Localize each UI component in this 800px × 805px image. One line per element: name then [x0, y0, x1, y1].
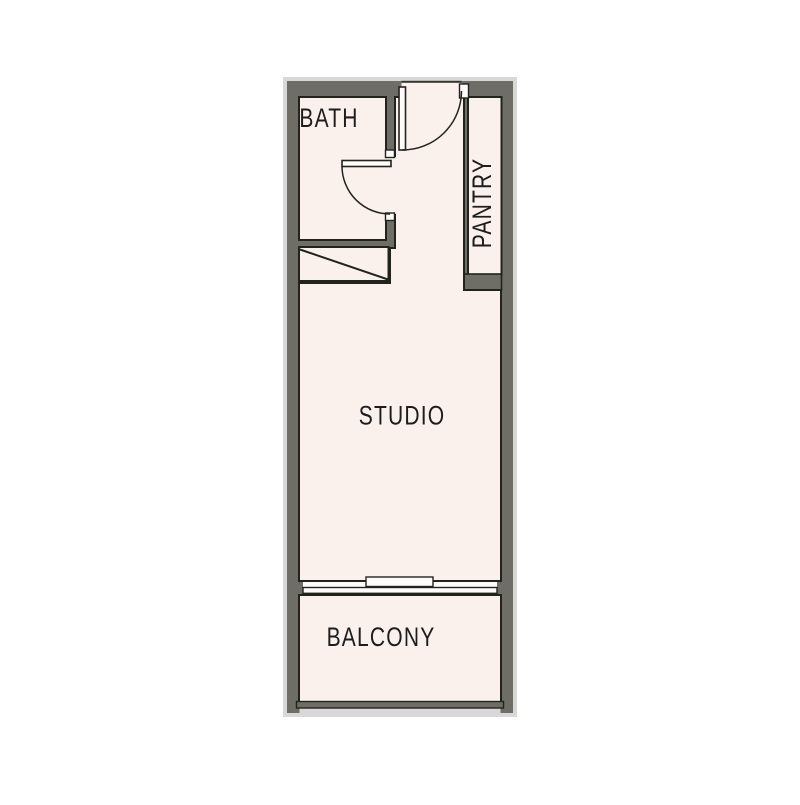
bath-door-leaf: [342, 161, 391, 167]
floor-plan: BATH PANTRY STUDIO BALCONY: [0, 0, 800, 805]
entry-doorway-opening: [402, 83, 462, 99]
floor-plan-canvas: BATH PANTRY STUDIO BALCONY: [0, 0, 800, 800]
balcony-label: BALCONY: [327, 623, 436, 653]
balcony-bottom-shadow: [300, 708, 501, 717]
sliding-panel: [366, 577, 433, 587]
entry-door-leaf: [399, 87, 406, 150]
entry-threshold-line: [402, 81, 462, 83]
pantry-label: PANTRY: [468, 158, 498, 248]
pantry-bottom-wall: [464, 274, 502, 291]
balcony-bottom-wall: [297, 702, 504, 709]
bath-door-jamb-top: [386, 150, 395, 158]
bath-label: BATH: [299, 104, 358, 134]
studio-label: STUDIO: [359, 401, 446, 431]
